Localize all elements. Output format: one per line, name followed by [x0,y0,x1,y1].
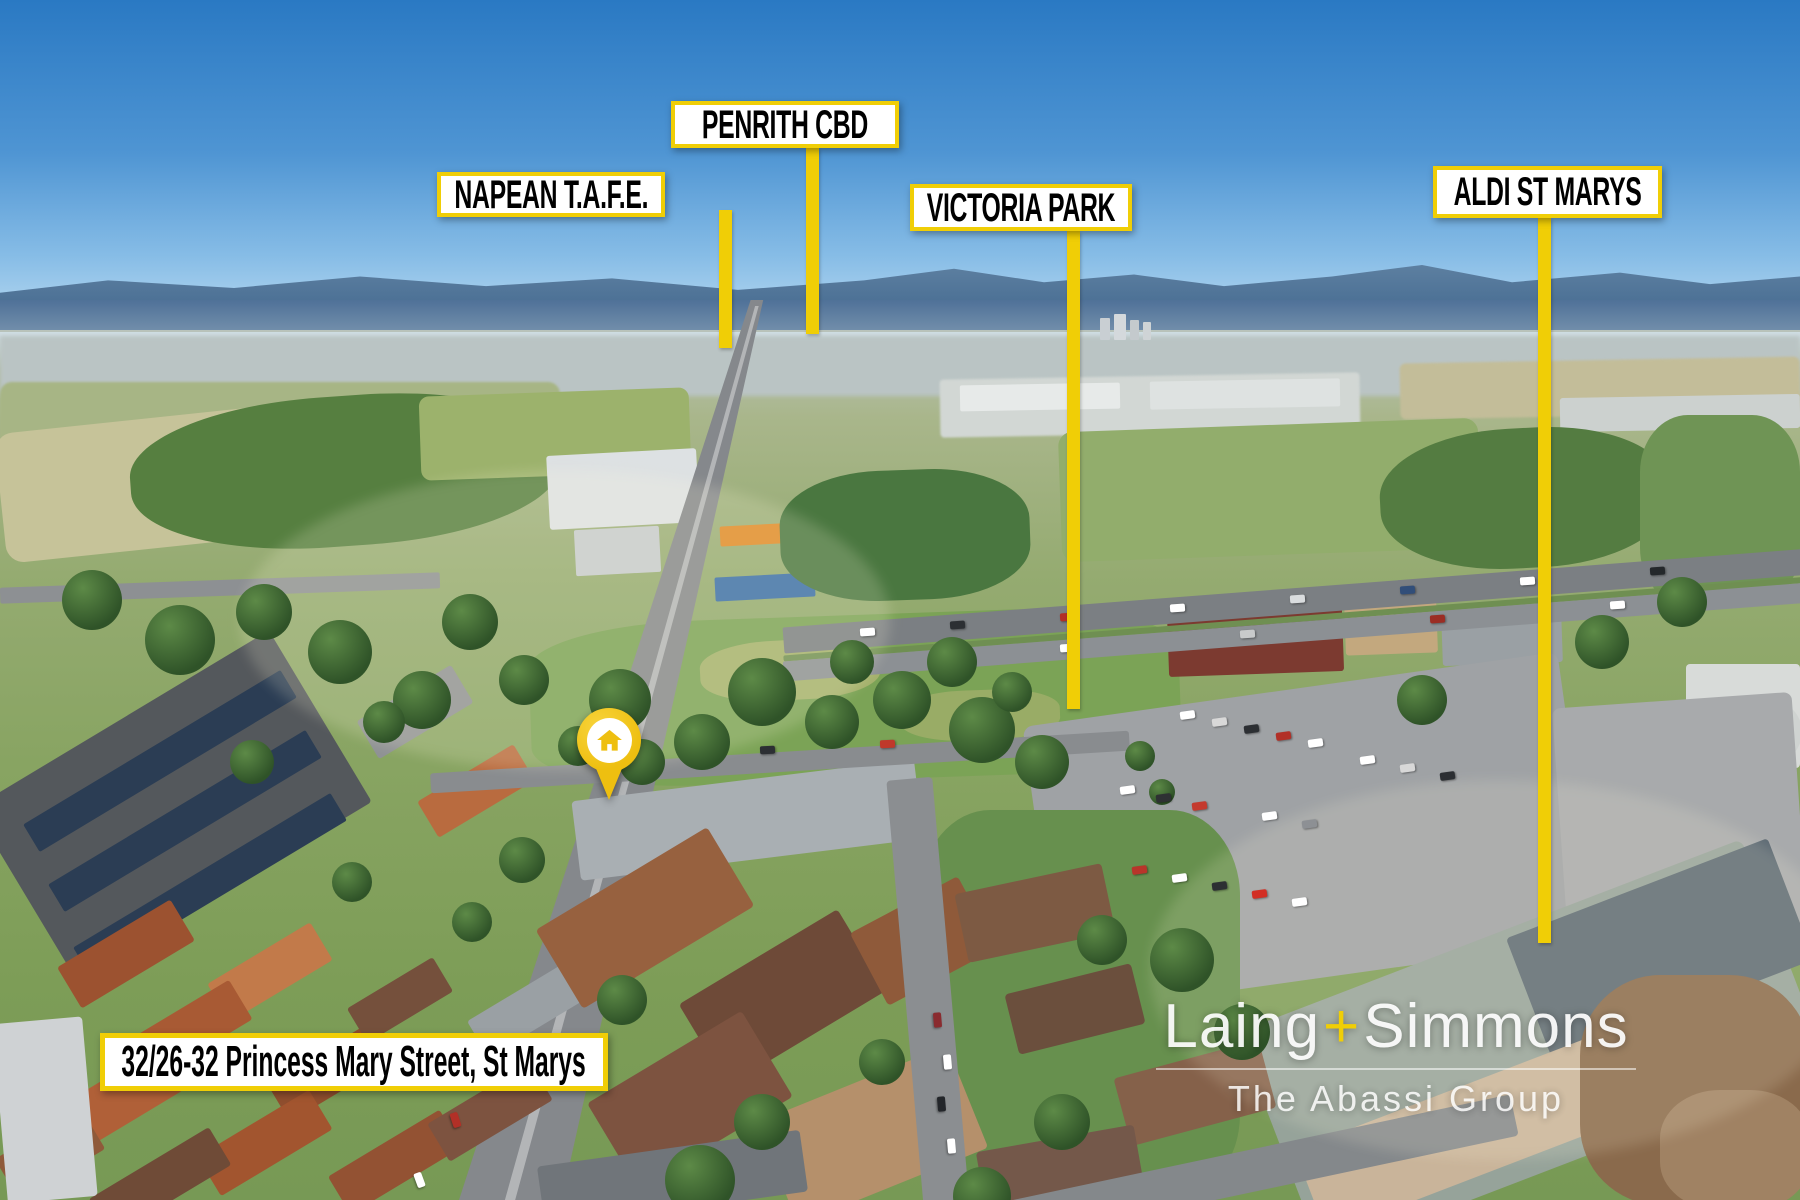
car [1170,603,1186,612]
tree [332,862,372,902]
tree [452,902,492,942]
tree [308,620,372,684]
aerial-photo: PENRITH CBD NAPEAN T.A.F.E. VICTORIA PAR… [0,0,1800,1200]
address-banner: 32/26-32 Princess Mary Street, St Marys [100,1033,608,1091]
tree [442,594,498,650]
scenery-blob [0,1016,98,1200]
car [937,1096,946,1112]
scenery-blob [1114,314,1126,340]
tree [499,655,549,705]
tree [499,837,545,883]
car [933,1012,942,1028]
callout-napean-tafe: NAPEAN T.A.F.E. [437,172,665,217]
scenery-blob [960,383,1120,412]
brand-watermark: Laing+Simmons The Abassi Group [1150,996,1642,1120]
tree [1034,1094,1090,1150]
car [860,627,876,636]
callout-line-aldi-st-marys [1538,218,1551,943]
car [947,1138,956,1154]
tree [597,975,647,1025]
tree [236,584,292,640]
car [943,1054,952,1070]
tree [1125,741,1155,771]
tree [1397,675,1447,725]
property-pin-disc [587,718,632,763]
callout-napean-tafe-text: NAPEAN T.A.F.E. [454,175,648,215]
property-pin-head [577,708,641,772]
tree [734,1094,790,1150]
car [1520,576,1536,585]
callout-penrith-cbd: PENRITH CBD [671,101,899,148]
tree [830,640,874,684]
tree [363,701,405,743]
scenery-blob [1143,322,1151,340]
callout-line-napean-tafe [719,210,732,348]
callout-line-victoria-park [1067,231,1080,709]
callout-line-penrith-cbd [806,148,819,334]
tree [1657,577,1707,627]
tree [873,671,931,729]
tree [1150,928,1214,992]
brand-divider [1156,1068,1636,1070]
tree [859,1039,905,1085]
tree [728,658,796,726]
brand-name-first: Laing [1163,992,1320,1061]
tree [1015,735,1069,789]
tree [674,714,730,770]
tree [992,672,1032,712]
tree [1077,915,1127,965]
tree [927,637,977,687]
callout-victoria-park: VICTORIA PARK [910,184,1132,231]
address-banner-text: 32/26-32 Princess Mary Street, St Marys [122,1040,586,1084]
property-pin [577,708,641,804]
car [760,746,775,755]
tree [230,740,274,784]
car [1650,566,1666,575]
car [1290,594,1306,603]
brand-name-second: Simmons [1363,992,1628,1061]
tree [1575,615,1629,669]
callout-victoria-park-text: VICTORIA PARK [927,188,1115,228]
car [1430,614,1446,623]
brand-tagline: The Abassi Group [1150,1078,1642,1120]
tree [62,570,122,630]
tree [145,605,215,675]
car [950,620,966,629]
car [1610,600,1626,609]
callout-penrith-cbd-text: PENRITH CBD [702,105,868,145]
car [880,740,895,749]
callout-aldi-st-marys: ALDI ST MARYS [1433,166,1662,218]
brand-plus-icon: + [1320,992,1363,1061]
house-icon [596,728,623,753]
scenery-blob [1100,318,1110,340]
callout-aldi-st-marys-text: ALDI ST MARYS [1454,172,1642,212]
brand-name: Laing+Simmons [1150,996,1642,1058]
scenery-blob [1130,320,1139,340]
car [1400,585,1416,594]
car [1240,629,1256,638]
tree [805,695,859,749]
scenery-blob [1150,378,1340,409]
